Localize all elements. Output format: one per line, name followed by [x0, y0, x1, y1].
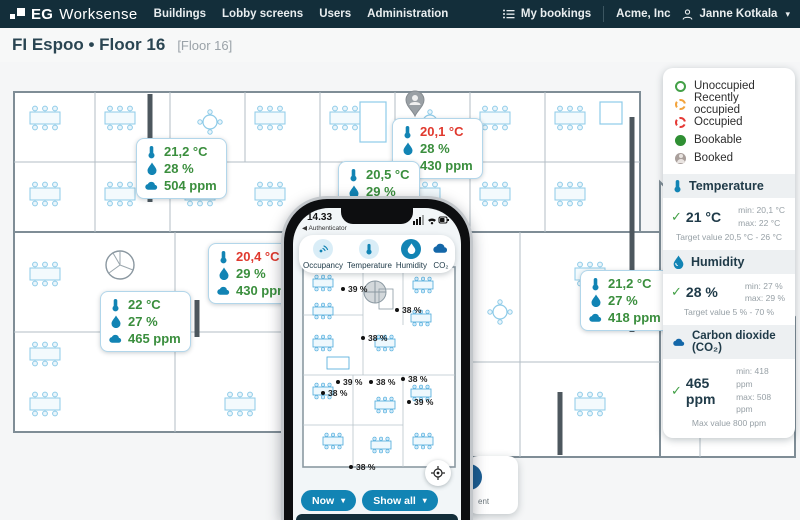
occupancy-legend: Unoccupied Recently occupied Occupied Bo…: [663, 68, 795, 174]
cloud-icon: [431, 239, 451, 259]
humidity-reading: 38 %: [369, 377, 395, 387]
booked-circle-icon: [675, 153, 686, 164]
co2-minmax: min: 418 ppm max: 508 ppm: [736, 365, 787, 416]
thermometer-icon: [401, 125, 414, 139]
temperature-max: max: 22 °C: [738, 217, 785, 230]
temp-value: 20,5 °C: [366, 167, 410, 182]
reading-dot-icon: [321, 391, 325, 395]
phone-back-app[interactable]: ◀ Authenticator: [302, 224, 347, 232]
humidity-value: 28 %: [164, 161, 194, 176]
bookable-circle-icon: [675, 135, 686, 146]
eg-logo-icon: [10, 7, 25, 21]
check-icon: ✓: [671, 383, 682, 399]
thermometer-icon: [217, 250, 230, 264]
humidity-reading: 38 %: [401, 374, 427, 384]
reading-dot-icon: [369, 380, 373, 384]
co2-row: 465 ppm: [109, 331, 181, 346]
legend-item-bookable: Bookable: [675, 131, 783, 149]
humidity-value: 28 %: [420, 141, 450, 156]
thermometer-icon: [109, 298, 122, 312]
humidity-reading: 39 %: [341, 284, 367, 294]
nav-divider: [603, 6, 604, 22]
top-nav: EG Worksense Buildings Lobby screens Use…: [0, 0, 800, 28]
recently-occupied-circle-icon: [675, 99, 686, 110]
reading-dot-icon: [407, 400, 411, 404]
droplet-icon: [589, 294, 602, 308]
user-icon: [682, 9, 693, 20]
phone-floor-plan[interactable]: [293, 265, 461, 480]
temperature-row: 20,5 °C: [347, 167, 410, 182]
nav-items: Buildings Lobby screens Users Administra…: [154, 8, 449, 20]
temperature-current: ✓21 °C: [671, 209, 721, 225]
humidity-minmax: min: 27 % max: 29 %: [745, 280, 787, 306]
droplet-icon: [673, 255, 684, 269]
temp-value: 21,2 °C: [608, 276, 652, 291]
thermometer-icon: [589, 277, 602, 291]
phone-time: 14.33: [307, 212, 332, 223]
humidity-reading: 38 %: [361, 333, 387, 343]
humidity-reading: 39 %: [407, 397, 433, 407]
co2-row: 430 ppm: [217, 283, 289, 298]
thermometer-icon: [347, 168, 360, 182]
temperature-target: Target value 20,5 °C - 26 °C: [663, 231, 795, 250]
temperature-row: 21,2 °C: [589, 276, 661, 291]
co2-value: 465 ppm: [128, 331, 181, 346]
booked-person-pin[interactable]: [404, 90, 426, 118]
droplet-icon: [145, 162, 158, 176]
droplet-icon: [217, 267, 230, 281]
temperature-section-header: Temperature: [663, 174, 795, 198]
worksense-app: EG Worksense Buildings Lobby screens Use…: [0, 0, 800, 520]
humidity-section-body: ✓28 % min: 27 % max: 29 %: [663, 274, 795, 307]
co2-value: 418 ppm: [608, 310, 661, 325]
chevron-down-icon: ▾: [785, 9, 790, 20]
legend-label: Bookable: [694, 134, 742, 146]
chevron-down-icon: ▾: [423, 496, 427, 505]
legend-item-booked: Booked: [675, 149, 783, 167]
check-icon: ✓: [671, 284, 682, 300]
legend-label: Recently occupied: [694, 92, 783, 116]
co2-current: ✓465 ppm: [671, 375, 736, 407]
humidity-row: 29 %: [217, 266, 289, 281]
co2-min: min: 418 ppm: [736, 365, 785, 391]
phone-screen: 14.33 ◀ Authenticator Occupancy: [293, 208, 461, 520]
cloud-icon: [217, 284, 230, 298]
temperature-min: min: 20,1 °C: [738, 204, 785, 217]
co2-row: 418 ppm: [589, 310, 661, 325]
my-bookings-label: My bookings: [521, 8, 591, 20]
co2-section-header: Carbon dioxide (CO₂): [663, 325, 795, 359]
tab-temperature[interactable]: Temperature: [347, 239, 392, 270]
tab-label: CO₂: [433, 261, 448, 270]
temperature-row: 22 °C: [109, 297, 181, 312]
section-title: Temperature: [689, 179, 764, 193]
check-icon: ✓: [671, 209, 682, 225]
droplet-icon: [401, 142, 414, 156]
occupancy-sensor-icon: [313, 239, 333, 259]
nav-item-lobby-screens[interactable]: Lobby screens: [222, 8, 303, 20]
legend-label: Booked: [694, 152, 733, 164]
co2-max: max: 508 ppm: [736, 391, 785, 417]
show-all-dropdown[interactable]: Show all▾: [362, 490, 438, 511]
phone-status-icons: [413, 215, 449, 225]
reading-dot-icon: [395, 308, 399, 312]
now-dropdown[interactable]: Now▾: [301, 490, 356, 511]
section-title: Humidity: [691, 255, 744, 269]
page-header: FI Espoo • Floor 16 [Floor 16]: [0, 28, 800, 62]
user-menu[interactable]: Janne Kotkala ▾: [682, 8, 790, 20]
legend-item-recently-occupied: Recently occupied: [675, 95, 783, 113]
humidity-reading: 38 %: [321, 388, 347, 398]
temp-value: 20,4 °C: [236, 249, 280, 264]
tab-occupancy[interactable]: Occupancy: [303, 239, 343, 270]
co2-value: 430 ppm: [420, 158, 473, 173]
cloud-icon: [109, 332, 122, 346]
reading-dot-icon: [336, 380, 340, 384]
phone-bottom-sheet[interactable]: [296, 514, 458, 520]
humidity-section-header: Humidity: [663, 250, 795, 274]
sensor-tab-bar: Occupancy Temperature Humidity: [299, 235, 455, 273]
humidity-reading: 38 %: [349, 462, 375, 472]
company-name[interactable]: Acme, Inc: [616, 8, 670, 20]
nav-right: My bookings Acme, Inc Janne Kotkala ▾: [503, 6, 790, 22]
temperature-row: 21,2 °C: [145, 144, 217, 159]
humidity-reading: 39 %: [336, 377, 362, 387]
locate-button[interactable]: [425, 460, 451, 486]
list-icon: [503, 9, 515, 19]
humidity-row: 27 %: [589, 293, 661, 308]
humidity-reading: 38 %: [395, 305, 421, 315]
tab-humidity[interactable]: Humidity: [396, 239, 427, 270]
droplet-icon: [401, 239, 421, 259]
tab-label: Occupancy: [303, 261, 343, 270]
page-title: FI Espoo • Floor 16: [12, 35, 165, 55]
thermometer-icon: [673, 179, 682, 193]
co2-row: 504 ppm: [145, 178, 217, 193]
chevron-down-icon: ▾: [341, 496, 345, 505]
my-bookings-button[interactable]: My bookings: [503, 8, 591, 20]
temperature-row: 20,1 °C: [401, 124, 473, 139]
co2-value: 504 ppm: [164, 178, 217, 193]
section-title: Carbon dioxide (CO₂): [692, 330, 785, 354]
tab-label: Humidity: [396, 261, 427, 270]
reading-dot-icon: [341, 287, 345, 291]
brand-eg: EG: [31, 6, 53, 23]
temp-value: 22 °C: [128, 297, 161, 312]
thermometer-icon: [359, 239, 379, 259]
user-name: Janne Kotkala: [699, 8, 777, 20]
temperature-minmax: min: 20,1 °C max: 22 °C: [738, 204, 787, 230]
nav-item-administration[interactable]: Administration: [367, 8, 448, 20]
cloud-icon: [145, 179, 158, 193]
reading-dot-icon: [361, 336, 365, 340]
occupied-circle-icon: [675, 117, 686, 128]
reading-dot-icon: [401, 377, 405, 381]
tab-co2[interactable]: CO₂: [431, 239, 451, 270]
brand-word: Worksense: [59, 6, 137, 23]
temperature-section-body: ✓21 °C min: 20,1 °C max: 22 °C: [663, 198, 795, 231]
hidden-card-fragment[interactable]: ent: [468, 456, 518, 514]
environment-panel: Unoccupied Recently occupied Occupied Bo…: [663, 68, 795, 438]
humidity-value: 27 %: [608, 293, 638, 308]
phone-notch: [341, 208, 413, 224]
droplet-icon: [109, 315, 122, 329]
floor-tag: [Floor 16]: [177, 38, 232, 53]
humidity-value: 27 %: [128, 314, 158, 329]
humidity-row: 28 %: [145, 161, 217, 176]
legend-label: Occupied: [694, 116, 743, 128]
temperature-row: 20,4 °C: [217, 249, 289, 264]
humidity-min: min: 27 %: [745, 280, 785, 293]
hidden-card-text: ent: [478, 497, 489, 506]
humidity-row: 27 %: [109, 314, 181, 329]
co2-section-body: ✓465 ppm min: 418 ppm max: 508 ppm: [663, 359, 795, 417]
humidity-target: Target value 5 % - 70 %: [663, 306, 795, 325]
humidity-max: max: 29 %: [745, 292, 785, 305]
sensor-badge[interactable]: 21,2 °C 27 % 418 ppm: [580, 270, 671, 331]
temp-value: 21,2 °C: [164, 144, 208, 159]
humidity-row: 28 %: [401, 141, 473, 156]
nav-item-buildings[interactable]: Buildings: [154, 8, 206, 20]
thermometer-icon: [145, 145, 158, 159]
tab-label: Temperature: [347, 261, 392, 270]
phone-filter-buttons: Now▾ Show all▾: [301, 490, 438, 511]
crosshair-icon: [431, 466, 445, 480]
sensor-badge[interactable]: 22 °C 27 % 465 ppm: [100, 291, 191, 352]
brand-logo[interactable]: EG Worksense: [10, 6, 138, 23]
cloud-icon: [589, 311, 602, 325]
humidity-current: ✓28 %: [671, 284, 718, 300]
humidity-value: 29 %: [236, 266, 266, 281]
nav-item-users[interactable]: Users: [319, 8, 351, 20]
phone-mockup: 14.33 ◀ Authenticator Occupancy: [281, 196, 473, 520]
temp-value: 20,1 °C: [420, 124, 464, 139]
sensor-badge[interactable]: 21,2 °C 28 % 504 ppm: [136, 138, 227, 199]
legend-label: Unoccupied: [694, 80, 755, 92]
reading-dot-icon: [349, 465, 353, 469]
co2-target: Max value 800 ppm: [663, 417, 795, 436]
cloud-icon: [673, 337, 685, 348]
unoccupied-circle-icon: [675, 81, 686, 92]
